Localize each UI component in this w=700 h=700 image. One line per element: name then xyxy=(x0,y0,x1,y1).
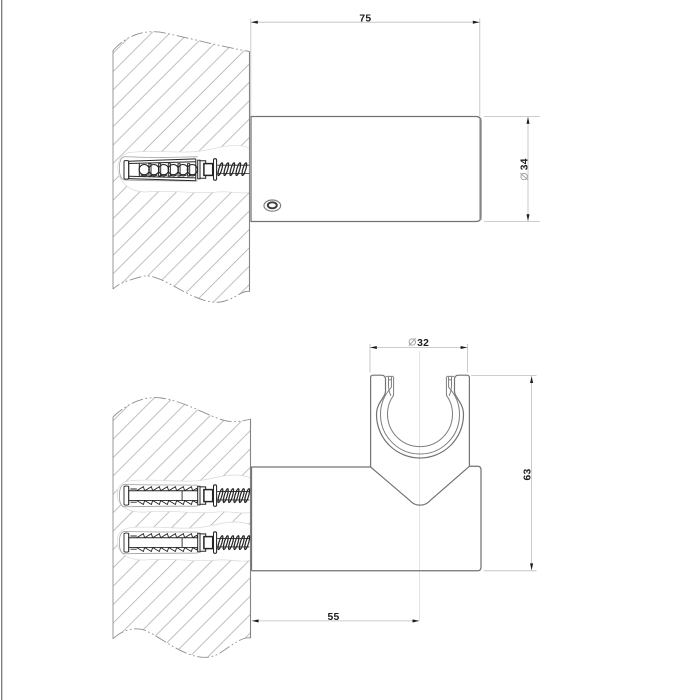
svg-text:75: 75 xyxy=(359,14,371,25)
svg-text:34: 34 xyxy=(519,158,530,170)
svg-text:63: 63 xyxy=(522,468,533,480)
svg-text:55: 55 xyxy=(327,612,339,623)
svg-text:32: 32 xyxy=(417,338,429,349)
